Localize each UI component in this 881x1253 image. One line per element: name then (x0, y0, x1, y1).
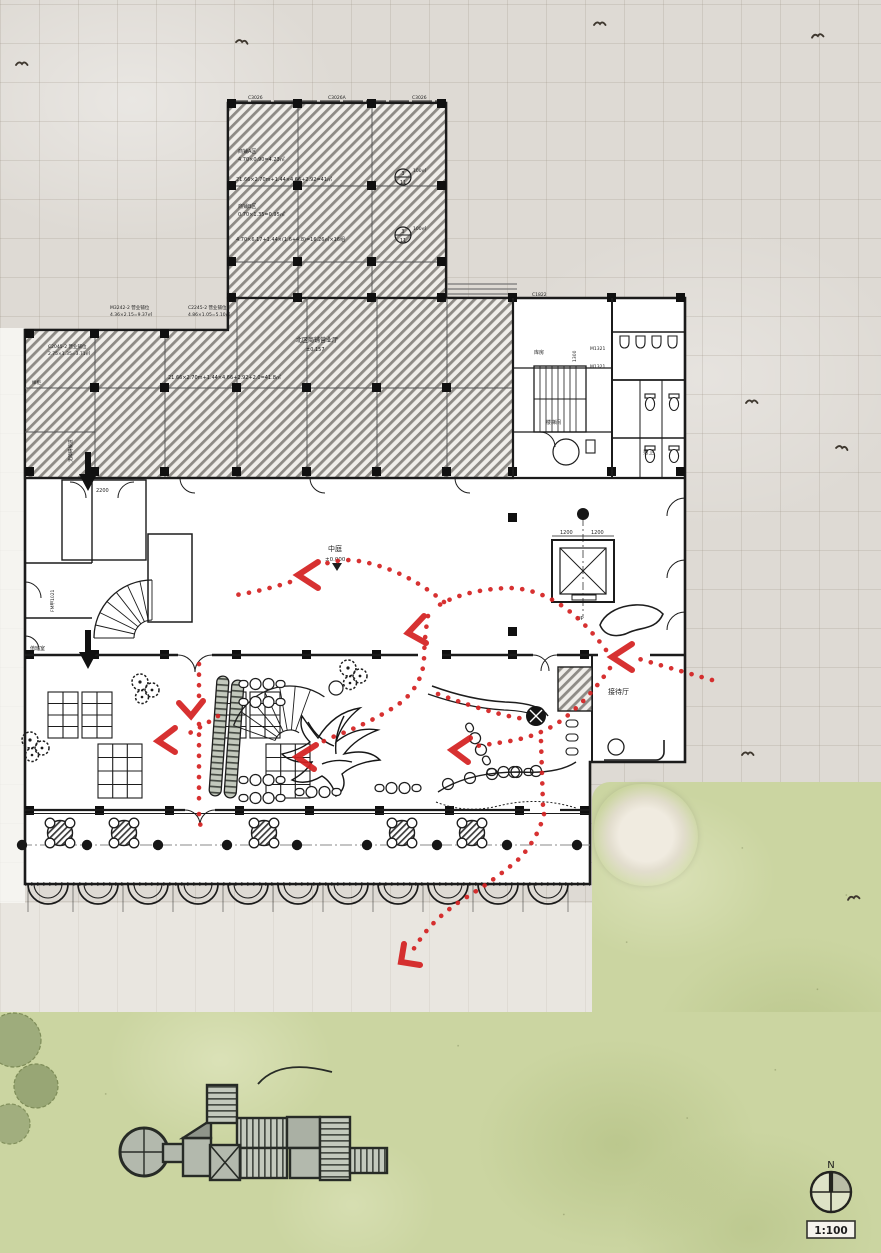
window-tag-2: C3026A (328, 95, 347, 101)
bay-tag-2-area: 4.86×1.05=5.10㎡ (188, 311, 231, 318)
floor-plan-drawing: C3026 C3026A C3026 商铺A区 4.70×0.90=4.23㎡ … (0, 0, 881, 1253)
site-plan-canvas: C3026 C3026A C3026 商铺A区 4.70×0.90=4.23㎡ … (0, 0, 881, 1253)
playground-structure (120, 1067, 387, 1180)
scale-badge: 1:100 (807, 1221, 855, 1238)
ramp-label: 无障碍坡道 (67, 439, 74, 462)
marker-2-den: 11 (400, 238, 406, 244)
stairwell-label: 楼梯间 (546, 419, 561, 426)
tree-cluster-left (0, 1013, 58, 1144)
elevator-dim-right: 1200 (591, 530, 604, 536)
bay-tag-3: C2045-2 营业铺位 (48, 343, 87, 350)
area-calc-1: 21.66×2.70m+1.44×4.66+2.92=41㎡ (236, 176, 332, 183)
vestibule-dim: 2200 (96, 488, 109, 494)
shop-b-area: 0.70×1.35=0.95㎡ (238, 211, 285, 218)
wc-door-tag-1: M1321 (590, 346, 605, 352)
area-calc-2: 4.70×6.17+1.44×(1.6+4.8)=16.26㎡×16组 (236, 236, 345, 243)
window-tag-1: C3026 (248, 95, 263, 101)
north-label: N (827, 1160, 834, 1171)
bay-tag-1: M3242-2 营业铺位 (110, 304, 150, 311)
wc-corridor-dim: 1300 (572, 350, 578, 362)
marker-2-area: 100㎡ (413, 225, 427, 232)
colonnade-arches (28, 884, 568, 912)
reception-label: 接待厅 (608, 687, 629, 696)
hatched-retail-north-block (228, 101, 446, 298)
shop-hall-level: ±0.157 (306, 347, 325, 353)
window-tag-3: C3026 (412, 95, 427, 101)
marker-2-num: 3 (401, 229, 404, 235)
storage-label: 库房 (534, 349, 544, 356)
atrium-label: 中庭 (328, 544, 342, 553)
area-calc-3: 21.66×2.70m+1.44×4.66+2.92+2.0=41.8㎡ (168, 374, 281, 381)
elevator-dim-left: 1200 (560, 530, 573, 536)
marker-1-area: 100㎡ (413, 167, 427, 174)
wc-door-tag-2: M1321 (590, 364, 605, 370)
duty-room-label: 值班室 (30, 645, 45, 652)
marker-1-den: 11 (400, 180, 406, 186)
marker-1-num: 3 (401, 171, 404, 177)
scale-label: 1:100 (814, 1225, 847, 1237)
bay-tag-3-area: 2.75×1.35=3.71㎡ (48, 350, 91, 357)
shop-hall-label: 北区商铺营业厅 (296, 336, 338, 344)
shop-a-area: 4.70×0.90=4.23㎡ (238, 156, 285, 163)
bay-tag-2: C2245-2 营业铺位 (188, 304, 227, 311)
wing-window-tag: C1822 (532, 292, 547, 298)
male-wc-label: 男卫 (643, 449, 655, 456)
fire-door-tag: FM甲1021 (50, 589, 56, 612)
bay-tag-1-area: 4.36×2.15=9.37㎡ (110, 311, 153, 318)
hatched-retail-band (25, 284, 517, 478)
north-compass: N (811, 1160, 851, 1212)
shop-b-name: 商铺B区 (238, 203, 256, 210)
shop-a-name: 商铺A区 (238, 148, 256, 155)
sample-cabinet-label: 样柜 (32, 379, 41, 386)
